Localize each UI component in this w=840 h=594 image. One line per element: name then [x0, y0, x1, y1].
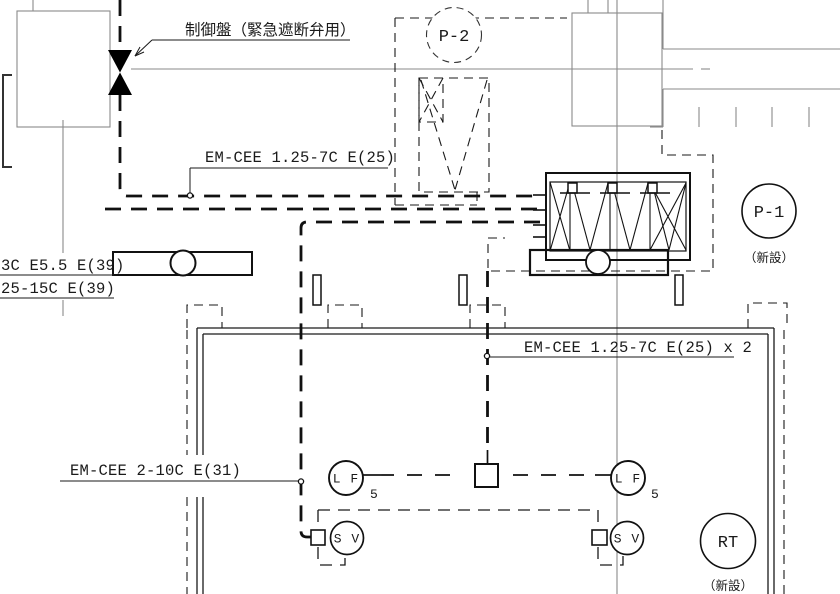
- leader-node: [187, 193, 192, 198]
- rt-label: RT: [718, 534, 738, 553]
- label-cable-2-10c: EM-CEE 2-10C E(31): [60, 462, 304, 484]
- wall-opening-bracket: [3, 75, 12, 167]
- damper-actuators: [560, 183, 670, 193]
- tag-p2: P-2: [427, 8, 482, 63]
- sv-unit-right: S V: [592, 522, 644, 555]
- cable-runs: [105, 0, 540, 537]
- label-cable-3c: 3C E5.5 E(39): [0, 257, 125, 275]
- tag-rt: RT （新設）: [701, 514, 756, 594]
- cable-3c-text: 3C E5.5 E(39): [1, 257, 125, 275]
- pump-symbol: [113, 251, 252, 276]
- p1-label: P-1: [754, 204, 785, 223]
- rt-new-note: （新設）: [703, 578, 753, 594]
- sv-left-actuator: [311, 530, 325, 545]
- wall-piers: [313, 275, 683, 305]
- grille-ticks: [699, 107, 809, 127]
- lf-right-label: L F: [615, 472, 641, 487]
- label-cable-7c: EM-CEE 1.25-7C E(25): [187, 149, 395, 198]
- p1-new-note: （新設）: [744, 250, 794, 266]
- lf-right-sub: 5: [651, 487, 659, 502]
- sv-left-label: S V: [334, 532, 360, 547]
- leader-node: [298, 479, 303, 484]
- tag-p1: P-1 （新設）: [742, 184, 796, 266]
- label-control-panel: 制御盤（緊急遮断弁用）: [152, 21, 356, 40]
- cable-25-15c-text: 25-15C E(39): [1, 280, 115, 298]
- junction-box: [475, 464, 498, 487]
- label-cable-25-15c: 25-15C E(39): [0, 280, 115, 298]
- motor-circle: [586, 250, 610, 274]
- cable-run-top: [120, 95, 540, 196]
- floor-plan-drawing: P-2 P-1 （新設） RT （新設） L F 5 L F 5 S V S V…: [0, 0, 840, 594]
- cable-7c-text: EM-CEE 1.25-7C E(25): [205, 149, 395, 167]
- sv-right-label: S V: [614, 532, 640, 547]
- structure-lines: [17, 0, 840, 594]
- control-panel-text: 制御盤（緊急遮断弁用）: [185, 21, 356, 40]
- control-panel-outline: [17, 11, 110, 127]
- duct-outline: [419, 78, 489, 192]
- emergency-valve-icon: [108, 40, 152, 95]
- beam-outline: [748, 303, 787, 328]
- connection-ticks: [533, 195, 547, 237]
- fan-coil-unit: [530, 173, 690, 275]
- plan-canvas: P-2 P-1 （新設） RT （新設） L F 5 L F 5 S V S V…: [0, 0, 840, 594]
- lf-unit-left: L F 5: [329, 461, 378, 502]
- cable-7c-x2-text: EM-CEE 1.25-7C E(25) x 2: [524, 339, 752, 357]
- sv-unit-left: S V: [311, 522, 364, 555]
- beam-outline: [328, 305, 362, 328]
- sv-right-actuator: [592, 530, 607, 545]
- p2-label: P-2: [439, 28, 470, 47]
- room-walls: [197, 328, 774, 594]
- lf-left-label: L F: [333, 472, 359, 487]
- cable-2-10c-text: EM-CEE 2-10C E(31): [70, 462, 241, 480]
- lf-left-sub: 5: [370, 487, 378, 502]
- beam-outline: [187, 305, 222, 328]
- label-cable-7c-x2: EM-CEE 1.25-7C E(25) x 2: [484, 339, 752, 359]
- leader-node: [484, 353, 489, 358]
- lf-unit-right: L F 5: [611, 461, 659, 502]
